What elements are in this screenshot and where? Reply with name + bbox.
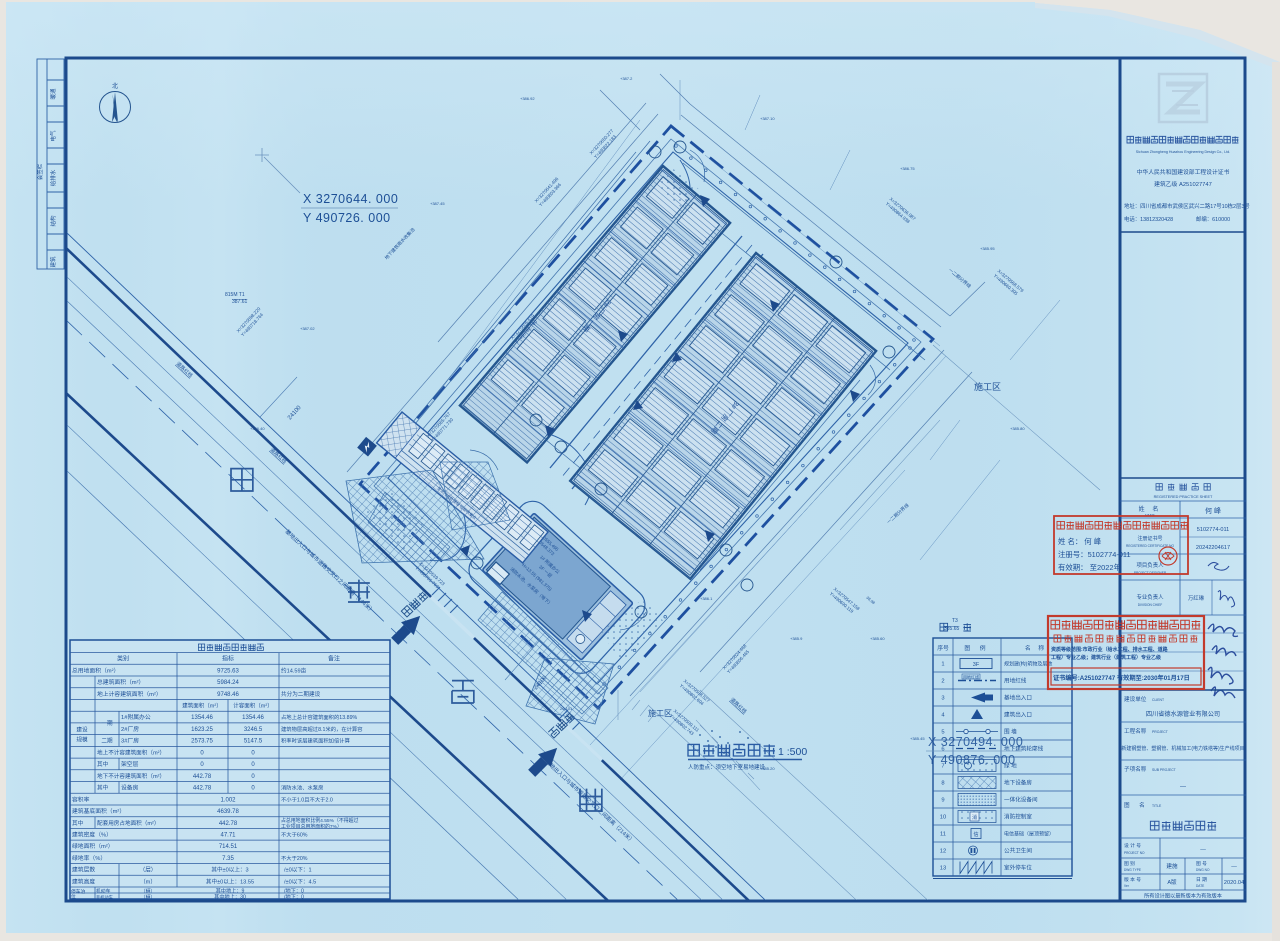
svg-text:+385.95: +385.95 <box>980 246 995 251</box>
svg-text:20242204617: 20242204617 <box>1196 545 1230 551</box>
svg-text:会签栏: 会签栏 <box>36 163 44 180</box>
svg-text:序号: 序号 <box>937 644 949 652</box>
svg-text:1 :500: 1 :500 <box>778 746 807 758</box>
svg-text:815M T1: 815M T1 <box>225 292 245 298</box>
svg-text:约14.59亩: 约14.59亩 <box>281 666 307 674</box>
svg-text:电信基础（屋顶预留）: 电信基础（屋顶预留） <box>1004 831 1054 838</box>
svg-text:中华人民共和国建设部工程设计证书: 中华人民共和国建设部工程设计证书 <box>1137 168 1230 176</box>
svg-text:计容面积（m²）: 计容面积（m²） <box>233 702 272 710</box>
svg-text:消: 消 <box>972 814 977 821</box>
svg-text:1354.46: 1354.46 <box>242 715 264 721</box>
svg-text:四川省德水源管业有限公司: 四川省德水源管业有限公司 <box>1146 710 1220 718</box>
svg-text:（m）: （m） <box>140 878 156 885</box>
svg-text:注册号：5102774-011: 注册号：5102774-011 <box>1058 550 1131 559</box>
svg-text:12: 12 <box>940 849 946 855</box>
svg-text:邮编：610000: 邮编：610000 <box>1196 215 1230 223</box>
svg-text:工程）专业乙级；建筑行业（建筑工程）专业乙级: 工程）专业乙级；建筑行业（建筑工程）专业乙级 <box>1051 654 1161 661</box>
svg-text:/地下：0: /地下：0 <box>284 887 304 895</box>
svg-text:其中: 其中 <box>97 784 109 792</box>
svg-text:备注: 备注 <box>328 655 340 663</box>
svg-text:总用地面积（m²）: 总用地面积（m²） <box>72 666 119 674</box>
svg-text:电气: 电气 <box>49 130 57 142</box>
svg-text:基地出入口: 基地出入口 <box>1004 694 1032 702</box>
svg-text:PROJECT: PROJECT <box>1152 730 1168 734</box>
svg-text:其中地上：9: 其中地上：9 <box>216 887 245 895</box>
svg-text:（辆）: （辆） <box>141 894 155 901</box>
svg-text:/±0以下：1: /±0以下：1 <box>284 867 312 874</box>
svg-text:Y 490726. 000: Y 490726. 000 <box>303 211 391 225</box>
svg-text:不小于1.0且不大于2.0: 不小于1.0且不大于2.0 <box>281 795 333 803</box>
svg-text:项目负责人: 项目负责人 <box>1137 561 1165 569</box>
svg-text:电话：13812320428: 电话：13812320428 <box>1124 215 1173 223</box>
svg-text:北: 北 <box>112 82 118 90</box>
svg-text:5984.24: 5984.24 <box>217 680 239 686</box>
svg-text:建筑出入口: 建筑出入口 <box>1004 711 1032 719</box>
svg-text:714.51: 714.51 <box>219 844 238 850</box>
svg-text:何 峰: 何 峰 <box>1205 506 1221 515</box>
svg-text:9748.46: 9748.46 <box>217 692 239 698</box>
svg-text:日 期: 日 期 <box>1196 877 1207 883</box>
svg-text:非机动车: 非机动车 <box>96 894 113 901</box>
svg-text:CLIENT: CLIENT <box>1152 698 1164 702</box>
svg-text:室外停车位: 室外停车位 <box>1004 864 1032 872</box>
svg-text:资质等级范围:市政行业（给水工程、排水工程、道路: 资质等级范围:市政行业（给水工程、排水工程、道路 <box>1051 646 1169 653</box>
svg-text:2020.04: 2020.04 <box>1224 880 1244 886</box>
svg-text:DWG TYPE: DWG TYPE <box>1124 868 1141 872</box>
svg-text:配套用房占地面积（m²）: 配套用房占地面积（m²） <box>97 819 159 827</box>
svg-text:指标: 指标 <box>222 655 234 663</box>
svg-text:结构: 结构 <box>49 215 57 227</box>
svg-text:专业负责人: 专业负责人 <box>1137 593 1165 601</box>
svg-text:架空层: 架空层 <box>121 760 139 768</box>
svg-text:3246.5: 3246.5 <box>244 727 263 733</box>
svg-text:（辆）: （辆） <box>141 888 155 895</box>
svg-text:规模: 规模 <box>76 736 88 744</box>
svg-text:名 称: 名 称 <box>1025 644 1047 652</box>
svg-text:地址：四川省成都市武侯区武兴二路17号10栋2层3号: 地址：四川省成都市武侯区武兴二路17号10栋2层3号 <box>1124 202 1250 210</box>
svg-text:5147.5: 5147.5 <box>244 739 263 745</box>
svg-text:+386.92: +386.92 <box>520 96 535 101</box>
svg-text:容积率: 容积率 <box>72 795 90 803</box>
svg-text:位: 位 <box>71 893 76 900</box>
svg-text:工程名称: 工程名称 <box>1124 727 1147 735</box>
svg-text:一体化设备间: 一体化设备间 <box>1004 796 1038 804</box>
svg-text:1623.25: 1623.25 <box>191 727 213 733</box>
svg-text:人防重点：须空地下室易地建设: 人防重点：须空地下室易地建设 <box>688 763 766 771</box>
svg-text:PROJECT NO: PROJECT NO <box>1124 851 1145 855</box>
svg-text:X 3270644. 000: X 3270644. 000 <box>303 192 398 206</box>
svg-text:—: — <box>1231 864 1237 870</box>
svg-text:442.78: 442.78 <box>193 786 212 792</box>
svg-text:建施: 建施 <box>1166 862 1178 870</box>
svg-text:+387.02: +387.02 <box>300 326 315 331</box>
svg-text:施工区: 施工区 <box>974 381 1001 392</box>
svg-text:地下设备房: 地下设备房 <box>1004 779 1032 787</box>
svg-text:姓 名： 何 峰: 姓 名： 何 峰 <box>1058 537 1102 546</box>
svg-text:+387.10: +387.10 <box>760 116 775 121</box>
svg-text:47.71: 47.71 <box>220 833 236 839</box>
svg-text:建设单位: 建设单位 <box>1124 695 1147 703</box>
svg-text:二期: 二期 <box>101 738 113 745</box>
svg-text:地上不计容建筑面积（m²）: 地上不计容建筑面积（m²） <box>97 749 165 757</box>
svg-text:2573.75: 2573.75 <box>191 739 213 745</box>
svg-text:5102774-011: 5102774-011 <box>1197 527 1230 533</box>
svg-text:给排水: 给排水 <box>49 169 57 186</box>
svg-text:Sichuan Zhongheng Huazhou Engi: Sichuan Zhongheng Huazhou Engineering De… <box>1136 150 1231 154</box>
svg-text:设备房: 设备房 <box>121 784 139 792</box>
svg-text:版 本 号: 版 本 号 <box>1124 876 1141 883</box>
svg-text:公共卫生间: 公共卫生间 <box>1004 847 1032 855</box>
svg-text:地上计容建筑面积（m²）: 地上计容建筑面积（m²） <box>97 690 162 698</box>
svg-text:11: 11 <box>940 832 946 838</box>
svg-text:建筑密度（%）: 建筑密度（%） <box>72 831 112 839</box>
svg-text:3: 3 <box>941 696 944 702</box>
svg-text:其中地上：30: 其中地上：30 <box>214 893 246 901</box>
svg-text:1#附属办公: 1#附属办公 <box>121 713 151 721</box>
svg-text:类别: 类别 <box>117 655 129 663</box>
svg-text:9725.63: 9725.63 <box>217 668 239 674</box>
svg-text:不大于60%: 不大于60% <box>281 831 308 839</box>
svg-text:绿地率（%）: 绿地率（%） <box>72 854 106 862</box>
svg-text:3F: 3F <box>973 662 980 668</box>
svg-text:8: 8 <box>941 781 944 787</box>
svg-text:建筑基底面积（m²）: 建筑基底面积（m²） <box>72 807 125 815</box>
svg-text:—: — <box>1200 847 1206 853</box>
svg-text:共分为二期建设: 共分为二期建设 <box>281 690 321 698</box>
svg-text:所有设计图以最新版本为有效版本: 所有设计图以最新版本为有效版本 <box>1144 892 1222 900</box>
svg-text:DIVISION CHIEF: DIVISION CHIEF <box>1138 603 1162 607</box>
svg-text:注册证书号: 注册证书号 <box>1137 535 1162 542</box>
svg-text:其中±0以上：3: 其中±0以上：3 <box>211 866 248 874</box>
svg-text:地下不计容建筑面积（m²）: 地下不计容建筑面积（m²） <box>97 772 165 780</box>
svg-text:图 名: 图 名 <box>1124 801 1149 809</box>
svg-text:/地下：0: /地下：0 <box>284 893 304 901</box>
svg-text:一期: 一期 <box>101 720 113 727</box>
svg-text:其中: 其中 <box>72 819 84 827</box>
svg-text:442.78: 442.78 <box>219 821 238 827</box>
svg-text:建筑面积（m²）: 建筑面积（m²） <box>182 702 221 710</box>
svg-text:其中: 其中 <box>97 760 109 768</box>
svg-text:TITLE: TITLE <box>1152 804 1162 808</box>
svg-text:万红琳: 万红琳 <box>1188 594 1205 602</box>
svg-text:+385.60: +385.60 <box>870 636 885 641</box>
svg-text:用地红线: 用地红线 <box>963 674 979 680</box>
svg-text:规划建(构)筑物及层数: 规划建(构)筑物及层数 <box>1004 661 1052 668</box>
svg-text:停车泊: 停车泊 <box>71 888 86 895</box>
svg-text:3#厂房: 3#厂房 <box>121 737 139 745</box>
svg-text:其中±0以上：13.55: 其中±0以上：13.55 <box>206 877 254 885</box>
svg-text:2: 2 <box>941 679 944 685</box>
svg-text:图 例: 图 例 <box>964 644 989 652</box>
svg-text:13: 13 <box>940 866 946 872</box>
svg-text:+386.75: +386.75 <box>900 166 915 171</box>
svg-text:图 号: 图 号 <box>1196 861 1207 867</box>
svg-text:建筑层数: 建筑层数 <box>72 866 95 874</box>
svg-text:+385.80: +385.80 <box>1010 426 1025 431</box>
svg-text:设 计 号: 设 计 号 <box>1124 842 1141 849</box>
svg-text:证书编号:A251027747 有效期至:2030年01月: 证书编号:A251027747 有效期至:2030年01月17日 <box>1053 674 1190 682</box>
svg-text:积率时该层建筑面积加倍计算: 积率时该层建筑面积加倍计算 <box>281 737 351 745</box>
svg-text:建筑高度: 建筑高度 <box>72 877 95 885</box>
svg-text:总建筑面积（m²）: 总建筑面积（m²） <box>97 678 144 686</box>
svg-text:占总用地面积比例4.55%（不得超过: 占总用地面积比例4.55%（不得超过 <box>281 817 359 824</box>
svg-text:SUB PROJECT: SUB PROJECT <box>1152 768 1176 772</box>
svg-text:DATE: DATE <box>1196 884 1204 888</box>
svg-text:暖通: 暖通 <box>49 88 57 100</box>
svg-text:7.35: 7.35 <box>222 856 234 862</box>
svg-text:1354.46: 1354.46 <box>191 715 213 721</box>
svg-text:工业项目总用地面积的7%）: 工业项目总用地面积的7%） <box>281 823 342 830</box>
svg-text:+386.1: +386.1 <box>700 596 713 601</box>
svg-text:—: — <box>1180 784 1186 790</box>
svg-text:不大于20%: 不大于20% <box>281 854 308 862</box>
svg-text:1: 1 <box>941 662 944 668</box>
svg-text:REGISTERED PRACTICE SHEET: REGISTERED PRACTICE SHEET <box>1154 495 1213 499</box>
svg-text:消防水池、水泵房: 消防水池、水泵房 <box>281 784 323 792</box>
svg-text:442.78: 442.78 <box>193 774 212 780</box>
svg-text:+387.2: +387.2 <box>620 76 633 81</box>
svg-text:1.002: 1.002 <box>220 797 236 803</box>
svg-text:消防控制室: 消防控制室 <box>1004 813 1032 821</box>
svg-text:+385.45: +385.45 <box>910 736 925 741</box>
svg-text:+387.45: +387.45 <box>430 201 445 206</box>
svg-text:4639.78: 4639.78 <box>217 809 239 815</box>
svg-text:子项名称: 子项名称 <box>1124 765 1147 773</box>
svg-text:姓 名: 姓 名 <box>1139 505 1162 513</box>
svg-text:9: 9 <box>941 798 944 804</box>
svg-text:A版: A版 <box>1167 878 1177 886</box>
svg-text:2#厂房: 2#厂房 <box>121 725 139 733</box>
svg-text:机动车: 机动车 <box>96 888 111 895</box>
svg-text:X 3270494. 000: X 3270494. 000 <box>928 735 1023 749</box>
svg-text:建筑物层高超过8.1米的，在计算容: 建筑物层高超过8.1米的，在计算容 <box>281 725 363 733</box>
svg-text:建筑: 建筑 <box>49 256 57 268</box>
svg-text:用地红线: 用地红线 <box>1004 677 1027 685</box>
svg-text:建设: 建设 <box>76 726 88 734</box>
svg-text:Y 490876. 000: Y 490876. 000 <box>928 753 1016 767</box>
svg-text:新建钢塑管、塑钢管、机械加工(电力铁塔等)生产线项目: 新建钢塑管、塑钢管、机械加工(电力铁塔等)生产线项目 <box>1121 745 1244 752</box>
svg-text:（层）: （层） <box>140 867 157 874</box>
svg-text:占地上总计容建筑面积的13.89%: 占地上总计容建筑面积的13.89% <box>281 713 358 721</box>
svg-text:+385.9: +385.9 <box>790 636 803 641</box>
svg-text:有效期： 至2022年: 有效期： 至2022年 <box>1058 563 1121 572</box>
svg-text:建筑乙级 A251027747: 建筑乙级 A251027747 <box>1154 180 1212 188</box>
svg-text:T3: T3 <box>952 618 958 624</box>
svg-text:图 别: 图 别 <box>1124 860 1135 867</box>
svg-text:DWG NO: DWG NO <box>1196 868 1210 872</box>
svg-text:10: 10 <box>940 815 946 821</box>
svg-text:387.61: 387.61 <box>232 299 248 305</box>
svg-text:信: 信 <box>973 831 978 838</box>
svg-text:/±0以下：4.5: /±0以下：4.5 <box>284 878 316 885</box>
svg-text:绿地面积（m²）: 绿地面积（m²） <box>72 842 114 850</box>
